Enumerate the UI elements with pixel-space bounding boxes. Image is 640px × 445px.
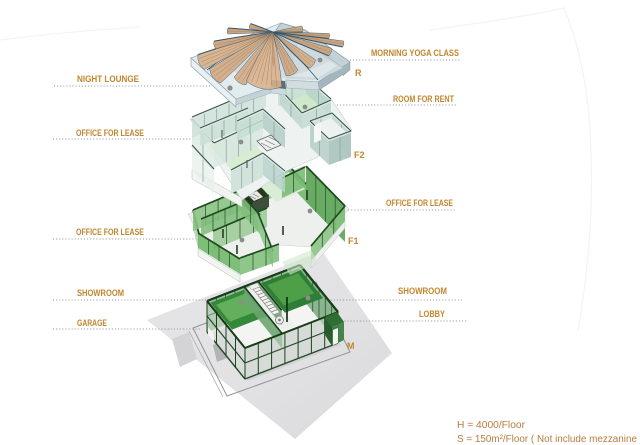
svg-text:S = 150m²/Floor ( Not include: S = 150m²/Floor ( Not include mezzanine … bbox=[457, 434, 640, 445]
svg-text:M: M bbox=[347, 341, 355, 351]
svg-text:NIGHT LOUNGE: NIGHT LOUNGE bbox=[77, 74, 139, 84]
svg-text:SHOWROOM: SHOWROOM bbox=[398, 286, 447, 296]
svg-text:F1: F1 bbox=[348, 236, 359, 246]
svg-text:LOBBY: LOBBY bbox=[419, 309, 445, 319]
svg-text:R: R bbox=[355, 68, 362, 78]
svg-text:MORNING YOGA CLASS: MORNING YOGA CLASS bbox=[371, 48, 459, 58]
svg-text:ROOM FOR RENT: ROOM FOR RENT bbox=[393, 94, 454, 104]
svg-text:GARAGE: GARAGE bbox=[77, 318, 107, 328]
svg-text:H = 4000/Floor: H = 4000/Floor bbox=[457, 420, 526, 431]
svg-text:SHOWROOM: SHOWROOM bbox=[77, 288, 124, 298]
svg-text:OFFICE FOR LEASE: OFFICE FOR LEASE bbox=[76, 128, 144, 138]
svg-text:OFFICE FOR LEASE: OFFICE FOR LEASE bbox=[386, 198, 453, 208]
svg-text:OFFICE FOR LEASE: OFFICE FOR LEASE bbox=[76, 227, 144, 237]
svg-text:F2: F2 bbox=[354, 150, 365, 160]
